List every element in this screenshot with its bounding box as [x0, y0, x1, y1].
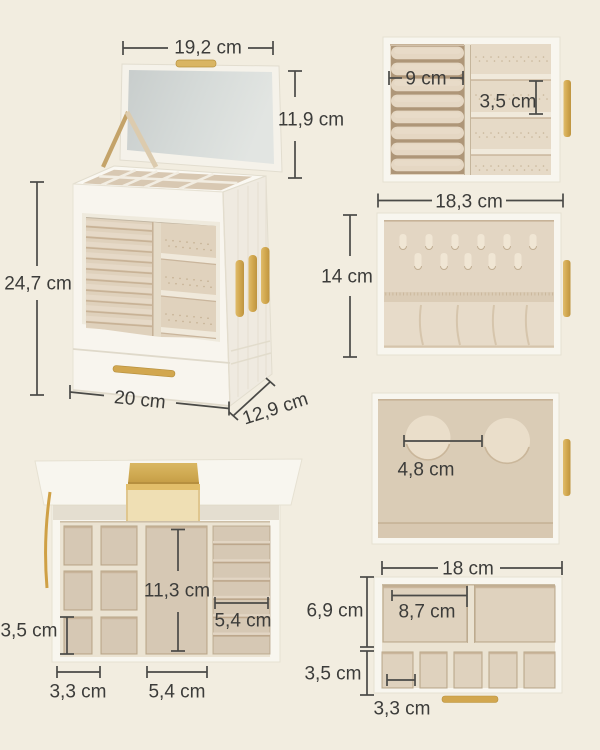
svg-text:3,5 cm: 3,5 cm [0, 621, 57, 642]
svg-text:5,4 cm: 5,4 cm [214, 611, 271, 632]
svg-text:11,3 cm: 11,3 cm [144, 581, 210, 602]
svg-text:18 cm: 18 cm [442, 559, 494, 580]
svg-text:6,9 cm: 6,9 cm [306, 601, 363, 622]
svg-text:3,5 cm: 3,5 cm [304, 664, 361, 685]
svg-text:3,3 cm: 3,3 cm [373, 699, 430, 720]
svg-text:3,5 cm: 3,5 cm [479, 92, 536, 113]
svg-text:19,2 cm: 19,2 cm [174, 38, 242, 59]
svg-text:9 cm: 9 cm [405, 69, 446, 90]
svg-text:24,7 cm: 24,7 cm [4, 274, 72, 295]
svg-text:14 cm: 14 cm [321, 267, 373, 288]
svg-text:3,3 cm: 3,3 cm [49, 682, 106, 703]
svg-text:4,8 cm: 4,8 cm [397, 460, 454, 481]
svg-text:11,9 cm: 11,9 cm [278, 110, 344, 131]
svg-text:18,3 cm: 18,3 cm [435, 192, 503, 213]
svg-text:5,4 cm: 5,4 cm [148, 682, 205, 703]
svg-text:8,7 cm: 8,7 cm [398, 602, 455, 623]
